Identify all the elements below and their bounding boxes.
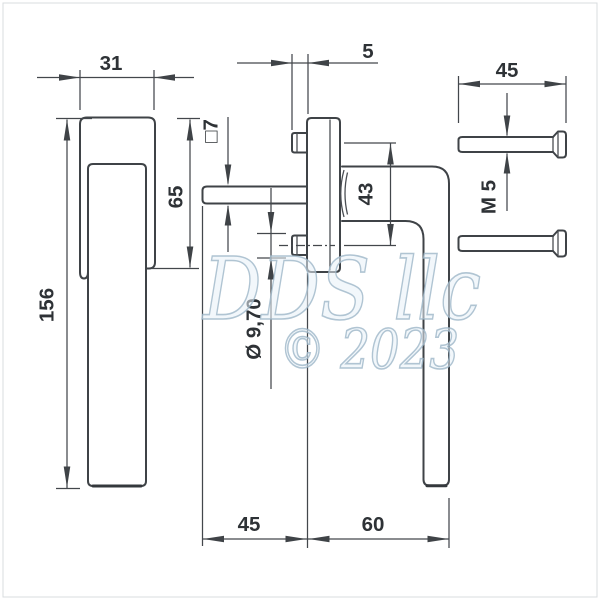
dim-arrow	[225, 205, 232, 226]
dim-arrow	[154, 74, 175, 81]
watermark-line2: © 2023	[279, 318, 459, 381]
handle-step-ubend	[80, 272, 88, 279]
dim-label-screw-spacing: 43	[355, 183, 378, 206]
dim-arrow	[187, 247, 194, 268]
neck-boss-arc-outer	[341, 170, 344, 217]
dim-top-to-axis: 65	[152, 119, 200, 269]
dim-arrow	[308, 60, 329, 67]
dim-label-projection: 60	[362, 513, 385, 536]
dim-label-handle-height: 156	[36, 288, 59, 322]
dim-arrow	[268, 212, 275, 233]
dim-arrow	[545, 81, 566, 88]
handle-grip-outline	[88, 164, 146, 486]
dim-arrow	[271, 60, 292, 67]
screw-upper-shaft	[459, 137, 554, 152]
dim-arrow	[309, 536, 330, 543]
dim-arrow	[459, 81, 480, 88]
screw-upper	[459, 132, 567, 158]
spindle-shaft	[203, 187, 308, 204]
drawing-page: 31 156 65 □7 Ø 9,70	[0, 0, 600, 600]
dim-screw-length: 45	[459, 59, 567, 123]
dim-arrow	[59, 74, 80, 81]
dim-arrow	[64, 467, 71, 488]
dim-label-spindle-to-plate: 45	[238, 513, 261, 536]
dim-arrow	[225, 165, 232, 186]
plate-screw-top	[292, 133, 307, 153]
handle-flange-outline	[80, 118, 155, 273]
dim-label-top-to-axis: 65	[165, 186, 188, 209]
dim-arrow	[203, 536, 224, 543]
screw-lower-head	[553, 231, 566, 257]
dim-arrow	[64, 120, 71, 141]
dim-screw-thread: M 5	[478, 93, 511, 214]
dim-plate-edge: 5	[237, 40, 378, 130]
dim-grip-width: 31	[37, 52, 194, 110]
technical-drawing-canvas: 31 156 65 □7 Ø 9,70	[0, 0, 600, 600]
front-view-handle	[80, 118, 155, 487]
dim-arrow	[187, 120, 194, 141]
dim-label-spindle-square: □7	[200, 119, 223, 143]
dim-arrow	[504, 116, 511, 137]
dim-arrow	[387, 144, 394, 165]
dim-spindle-square: □7	[200, 117, 232, 252]
dim-arrow	[286, 536, 307, 543]
dim-screw-spacing: 43	[344, 143, 396, 246]
dim-label-screw-length: 45	[496, 59, 519, 82]
screw-upper-head	[553, 132, 566, 158]
dim-handle-height: 156	[36, 119, 93, 489]
dim-arrow	[428, 536, 449, 543]
dim-arrow	[504, 153, 511, 174]
dim-label-grip-width: 31	[100, 52, 123, 75]
neck-boss-arc-inner	[345, 173, 348, 215]
fixing-screws-view	[459, 132, 567, 257]
dim-label-screw-thread: M 5	[478, 180, 501, 214]
dim-label-plate-edge: 5	[362, 40, 373, 63]
